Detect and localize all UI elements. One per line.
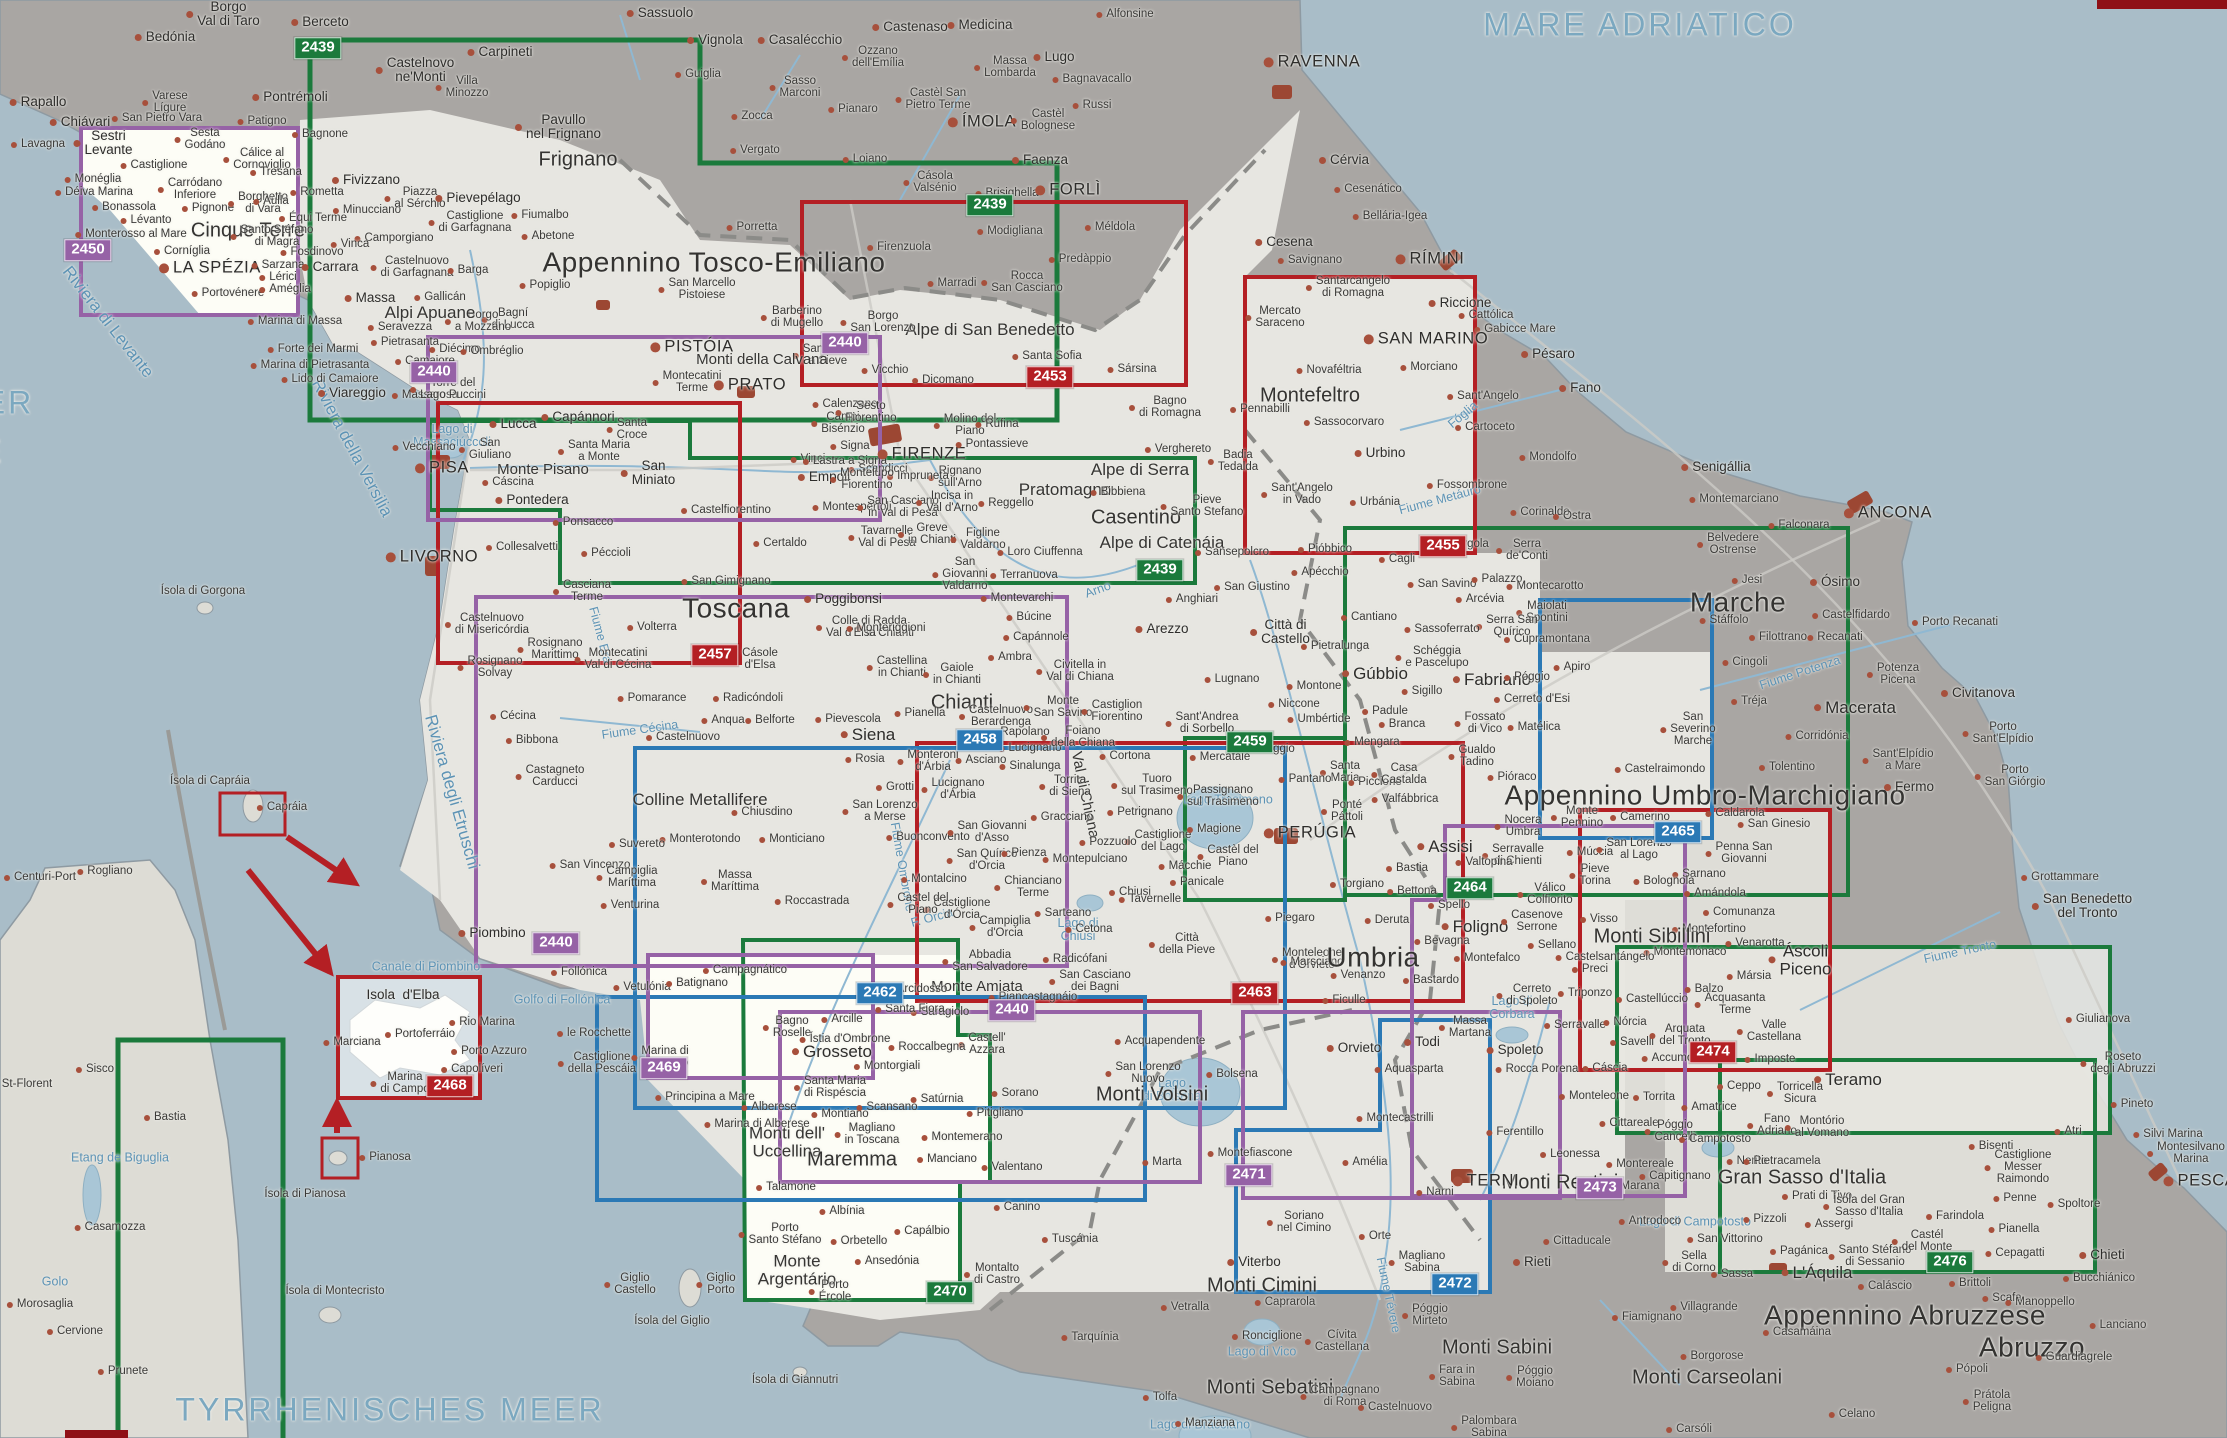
sheet-chip-2473[interactable]: 2473: [1576, 1177, 1623, 1199]
city-area: [737, 386, 755, 398]
map-graphics: [0, 0, 2227, 1438]
city-area: [596, 300, 610, 310]
partial-sheet-edge: [65, 1430, 128, 1438]
partial-sheet-edge: [2097, 0, 2227, 9]
city-area: [1451, 1169, 1473, 1183]
sheet-chip-2474[interactable]: 2474: [1689, 1041, 1736, 1063]
sheet-chip-2462[interactable]: 2462: [856, 982, 903, 1004]
sheet-chip-2458[interactable]: 2458: [956, 729, 1003, 751]
sheet-chip-2453[interactable]: 2453: [1026, 366, 1073, 388]
islet: [679, 1269, 701, 1307]
sheet-chip-2439[interactable]: 2439: [294, 37, 341, 59]
sheet-chip-2439[interactable]: 2439: [1136, 559, 1183, 581]
sheet-chip-2471[interactable]: 2471: [1225, 1164, 1272, 1186]
sheet-chip-2440[interactable]: 2440: [410, 361, 457, 383]
sheet-chip-2468[interactable]: 2468: [426, 1075, 473, 1097]
map-canvas: MARE ADRIATICOTYRRHENISCHES MEERMEERERiv…: [0, 0, 2227, 1438]
sheet-chip-2439[interactable]: 2439: [966, 194, 1013, 216]
islet: [243, 790, 263, 822]
islet: [329, 1151, 347, 1165]
lake: [1244, 1319, 1280, 1345]
sheet-chip-2470[interactable]: 2470: [926, 1281, 973, 1303]
sheet-chip-2476[interactable]: 2476: [1926, 1251, 1973, 1273]
sheet-chip-2464[interactable]: 2464: [1446, 877, 1493, 899]
sheet-chip-2459[interactable]: 2459: [1226, 731, 1273, 753]
city-area: [1272, 85, 1292, 99]
sheet-chip-2440[interactable]: 2440: [821, 332, 868, 354]
sheet-chip-2455[interactable]: 2455: [1419, 535, 1466, 557]
sheet-chip-2463[interactable]: 2463: [1231, 982, 1278, 1004]
lake: [1077, 895, 1103, 911]
region-covered-light: [1665, 1060, 2095, 1272]
lake: [1496, 1027, 1528, 1043]
sheet-chip-2450[interactable]: 2450: [64, 239, 111, 261]
sheet-chip-2440[interactable]: 2440: [988, 999, 1035, 1021]
sheet-chip-2465[interactable]: 2465: [1654, 821, 1701, 843]
lake: [83, 1165, 101, 1225]
islet: [319, 1307, 341, 1323]
islet: [793, 1367, 807, 1377]
islet: [197, 602, 213, 614]
sheet-chip-2469[interactable]: 2469: [640, 1057, 687, 1079]
sheet-chip-2440[interactable]: 2440: [532, 932, 579, 954]
sheet-chip-2472[interactable]: 2472: [1431, 1273, 1478, 1295]
lake: [1177, 787, 1253, 849]
sheet-chip-2457[interactable]: 2457: [691, 644, 738, 666]
